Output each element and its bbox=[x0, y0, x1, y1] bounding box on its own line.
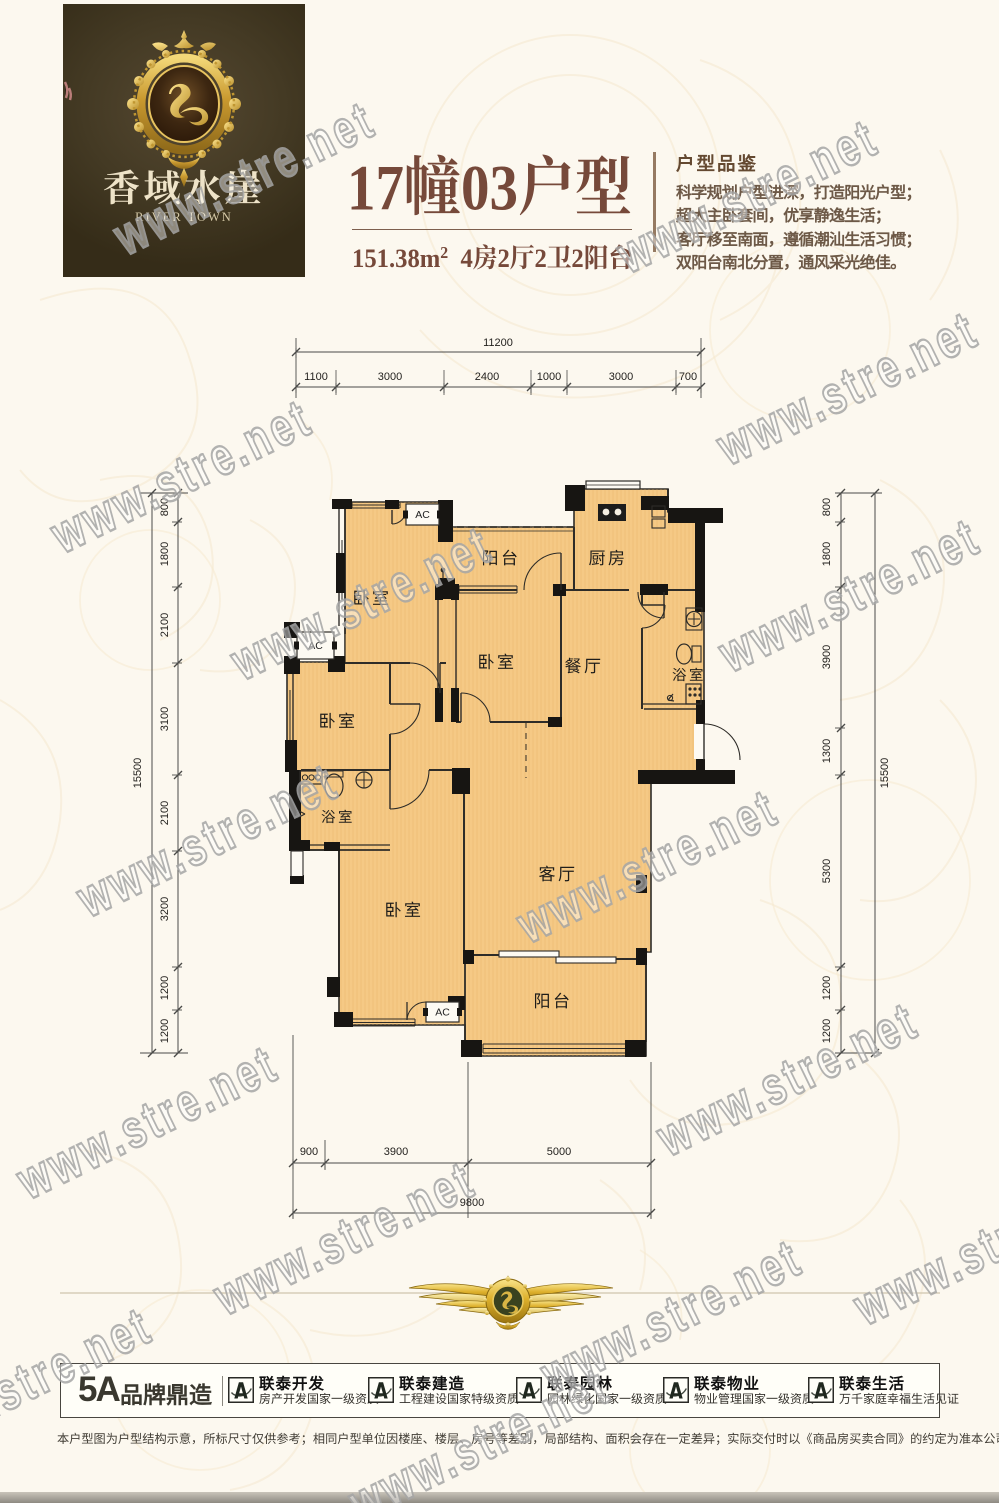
svg-text:3000: 3000 bbox=[609, 371, 633, 383]
svg-text:1200: 1200 bbox=[821, 976, 833, 1000]
svg-text:1800: 1800 bbox=[821, 542, 833, 566]
svg-text:3100: 3100 bbox=[159, 707, 171, 731]
svg-text:厨房: 厨房 bbox=[589, 544, 628, 569]
svg-text:5000: 5000 bbox=[547, 1146, 571, 1158]
svg-text:1300: 1300 bbox=[821, 739, 833, 763]
svg-text:卧室: 卧室 bbox=[478, 648, 517, 673]
svg-text:卧室: 卧室 bbox=[385, 896, 424, 921]
svg-text:3900: 3900 bbox=[821, 645, 833, 669]
svg-text:11200: 11200 bbox=[483, 337, 513, 349]
svg-text:2100: 2100 bbox=[159, 801, 171, 825]
svg-text:1000: 1000 bbox=[537, 371, 561, 383]
svg-text:3200: 3200 bbox=[159, 897, 171, 921]
svg-text:15500: 15500 bbox=[132, 758, 144, 789]
svg-text:2400: 2400 bbox=[475, 371, 499, 383]
svg-text:900: 900 bbox=[300, 1146, 318, 1158]
svg-text:15500: 15500 bbox=[879, 758, 891, 789]
svg-text:1200: 1200 bbox=[159, 976, 171, 1000]
svg-text:浴室: 浴室 bbox=[672, 664, 706, 685]
svg-text:卧室: 卧室 bbox=[319, 707, 358, 732]
svg-text:2100: 2100 bbox=[159, 613, 171, 637]
svg-text:1800: 1800 bbox=[159, 542, 171, 566]
svg-text:AC: AC bbox=[415, 509, 430, 521]
svg-text:1200: 1200 bbox=[159, 1019, 171, 1043]
svg-text:3000: 3000 bbox=[378, 371, 402, 383]
svg-text:700: 700 bbox=[679, 371, 697, 383]
svg-text:800: 800 bbox=[821, 498, 833, 516]
svg-text:餐厅: 餐厅 bbox=[565, 652, 604, 677]
svg-text:AC: AC bbox=[435, 1007, 450, 1019]
svg-text:阳台: 阳台 bbox=[534, 987, 573, 1012]
svg-text:3900: 3900 bbox=[384, 1146, 408, 1158]
svg-text:5300: 5300 bbox=[821, 859, 833, 883]
